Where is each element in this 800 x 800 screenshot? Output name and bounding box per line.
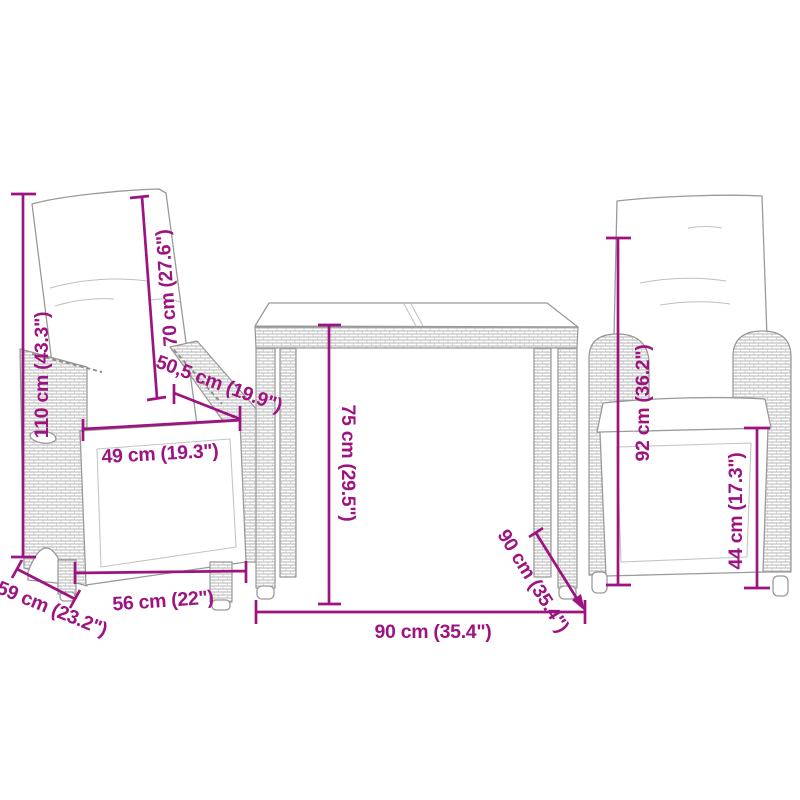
label-total-height: 110 cm (43.3") bbox=[31, 312, 53, 438]
left-chair-drawing bbox=[20, 189, 258, 610]
right-chair-foot-left bbox=[592, 572, 607, 593]
label-table-width: 90 cm (35.4") bbox=[375, 621, 492, 643]
table-leg-back-left bbox=[280, 348, 296, 577]
diagram-canvas: 110 cm (43.3") 70 cm (27.6") 50,5 cm (19… bbox=[0, 0, 800, 800]
label-chair-depth: 59 cm (23.2") bbox=[0, 577, 110, 641]
right-chair-foot-right bbox=[773, 576, 788, 596]
label-chair2-seat-height: 44 cm (17.3") bbox=[725, 453, 747, 570]
table-apron bbox=[255, 327, 578, 348]
label-chair2-backrest: 92 cm (36.2") bbox=[632, 345, 654, 462]
label-chair-width: 56 cm (22") bbox=[112, 586, 215, 615]
table-leg-front-left bbox=[256, 348, 275, 588]
label-table-height: 75 cm (29.5") bbox=[337, 405, 359, 522]
left-chair-rear-leg bbox=[58, 560, 76, 594]
table-leg-front-right bbox=[558, 348, 577, 588]
dimension-diagram: 110 cm (43.3") 70 cm (27.6") 50,5 cm (19… bbox=[0, 0, 800, 800]
